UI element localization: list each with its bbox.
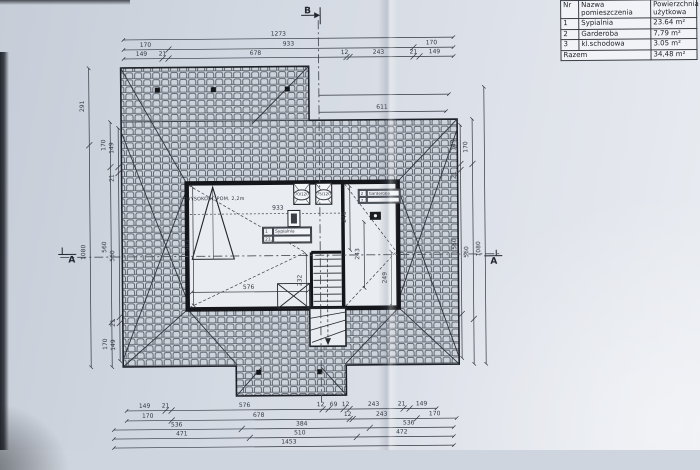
dim-label: 21 <box>410 49 418 55</box>
cell-name: kl.schodowa <box>579 39 651 50</box>
dim-label: 149 <box>139 404 151 410</box>
dim-label: 170 <box>142 414 154 420</box>
dim-label: 1080 <box>476 241 482 256</box>
dim-label: 678 <box>253 413 265 419</box>
room-tag-area: 23,64 m² <box>263 235 273 243</box>
dim-label: 1273 <box>271 32 286 38</box>
table-header-nr: Nr <box>561 0 579 18</box>
dim-label: 12 <box>344 412 352 418</box>
dim-label: 576 <box>243 285 255 291</box>
dim-label: 560 <box>452 238 458 250</box>
dim-label: 1080 <box>81 245 87 260</box>
dim-label: 170 <box>429 411 441 417</box>
dim-label: 170 <box>140 43 152 49</box>
dim-label: 291 <box>80 101 86 113</box>
dim-label: 21 <box>398 402 406 408</box>
dim-label: 560 <box>102 241 108 253</box>
dim-label: 232 <box>297 275 303 287</box>
dim-label: 149 <box>111 339 117 351</box>
dim-label: 933 <box>272 206 284 212</box>
dim-label: 21 <box>162 404 170 410</box>
floorplan-scan: B A A 1273 170 933 170 149 21 678 12 243… <box>0 0 700 450</box>
dim-label: 560 <box>464 246 470 258</box>
cell-area: 23.64 m² <box>651 17 697 28</box>
cell-nr: 2 <box>561 29 579 40</box>
total-label: Razem <box>561 49 651 60</box>
room-tag-sypialnia: 1 Sypialnia 23,64 m² <box>262 226 312 243</box>
dim-label: 170 <box>426 40 438 46</box>
chimney-symbol <box>288 210 300 226</box>
room-height-note: WYSOKOŚĆ POM. 2,2m <box>186 197 245 203</box>
room-tag-garderoba: 2 Garderoba 7,79 m² <box>358 189 401 204</box>
dim-label: 149 <box>451 139 457 151</box>
table-header-area: Powierzchnia użytkowa <box>651 0 697 18</box>
dim-label: 471 <box>176 431 188 437</box>
dim-label: 21 <box>110 174 116 182</box>
plan-linework <box>0 0 700 453</box>
section-label-b: B <box>304 7 311 16</box>
dim-label: 510 <box>294 430 306 436</box>
dim-label: 576 <box>239 403 251 409</box>
dim-label: 536 <box>403 420 415 426</box>
photo-corner-shadow <box>0 400 70 470</box>
dim-label: 149 <box>416 401 428 407</box>
dim-label: 563 <box>185 240 191 252</box>
dim-label: 170 <box>103 338 109 350</box>
partition-wall <box>343 184 344 306</box>
dim-label: 149 <box>136 52 148 58</box>
dim-label: 243 <box>376 412 388 418</box>
dim-label: 69 <box>330 402 338 408</box>
dim-label: 243 <box>373 50 385 56</box>
table-header-name: Nazwa pomieszczenia <box>579 0 651 18</box>
cell-name: Sypialnia <box>579 18 651 29</box>
dim-label: 170 <box>101 139 107 151</box>
room-tag-number: 1 <box>263 228 273 236</box>
dim-label: 243 <box>368 402 380 408</box>
dim-label: 21 <box>452 171 458 179</box>
appliance-symbol <box>370 212 381 220</box>
section-label-a-left: A <box>68 256 75 265</box>
cell-nr: 1 <box>561 18 579 29</box>
dim-label: 21 <box>159 52 167 58</box>
dim-label: 536 <box>171 422 183 428</box>
room-tag-area: 7,79 m² <box>359 196 367 203</box>
table-total-row: Razem 34,48 m² <box>561 49 697 61</box>
dim-label: 149 <box>109 142 115 154</box>
photo-edge-top <box>0 0 130 5</box>
dim-label: 933 <box>283 41 295 47</box>
room-area-table: Nr Nazwa pomieszczenia Powierzchnia użyt… <box>560 0 698 61</box>
dim-label: 560 <box>110 250 116 262</box>
dim-label: 12 <box>317 402 325 408</box>
dim-label: 611 <box>376 105 388 111</box>
drawing-scene: B A A 1273 170 933 170 149 21 678 12 243… <box>0 0 700 453</box>
section-label-a-right: A <box>490 258 497 267</box>
cell-nr: 3 <box>561 39 579 50</box>
dim-label: 678 <box>250 51 262 57</box>
room-tag-finish <box>273 235 311 243</box>
dim-label: 472 <box>396 430 408 436</box>
window-size-label: 75/120 <box>315 189 332 200</box>
photo-edge-left <box>0 52 9 450</box>
dim-label: 12 <box>342 402 350 408</box>
dim-label: 249 <box>382 272 388 284</box>
dim-label: 21 <box>111 319 117 327</box>
dim-label: 245 <box>342 211 348 223</box>
dim-label: 170 <box>463 141 469 153</box>
cell-area: 3.05 m² <box>651 38 697 49</box>
total-area: 34,48 m² <box>651 49 697 60</box>
cell-area: 7,79 m² <box>651 28 697 39</box>
dim-label: 243 <box>355 248 361 260</box>
room-tag-finish <box>367 196 400 203</box>
dim-label: 384 <box>296 421 308 427</box>
dim-label: 12 <box>341 50 349 56</box>
cell-name: Garderoba <box>579 28 651 39</box>
dim-label: 1453 <box>281 439 296 445</box>
dim-label: 149 <box>429 49 441 55</box>
